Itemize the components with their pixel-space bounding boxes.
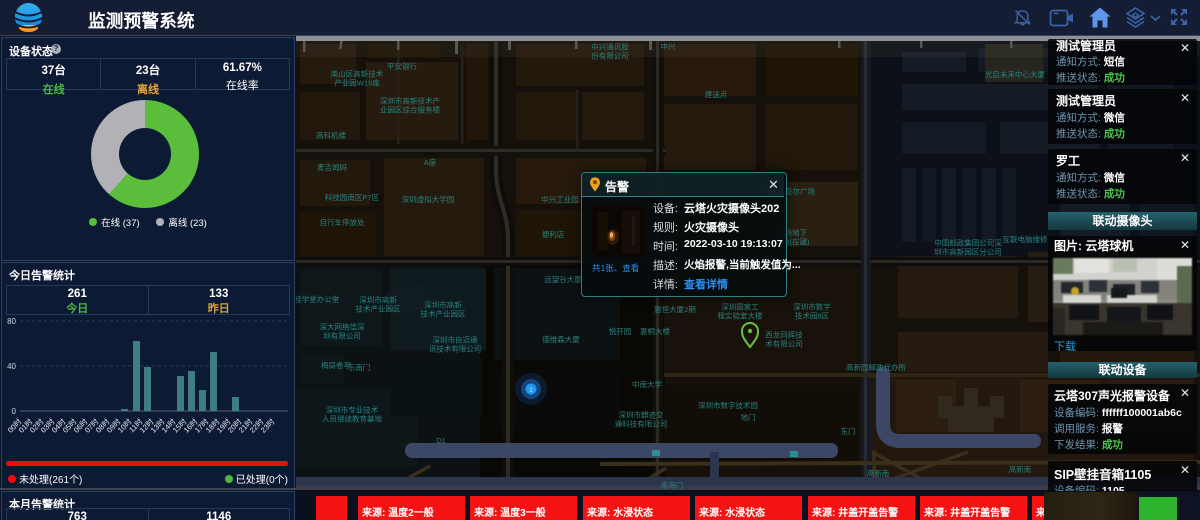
svg-text:80: 80 <box>7 317 16 326</box>
svg-text:40: 40 <box>7 362 16 371</box>
svg-text:0: 0 <box>12 407 17 416</box>
svg-text:23时: 23时 <box>258 416 277 435</box>
